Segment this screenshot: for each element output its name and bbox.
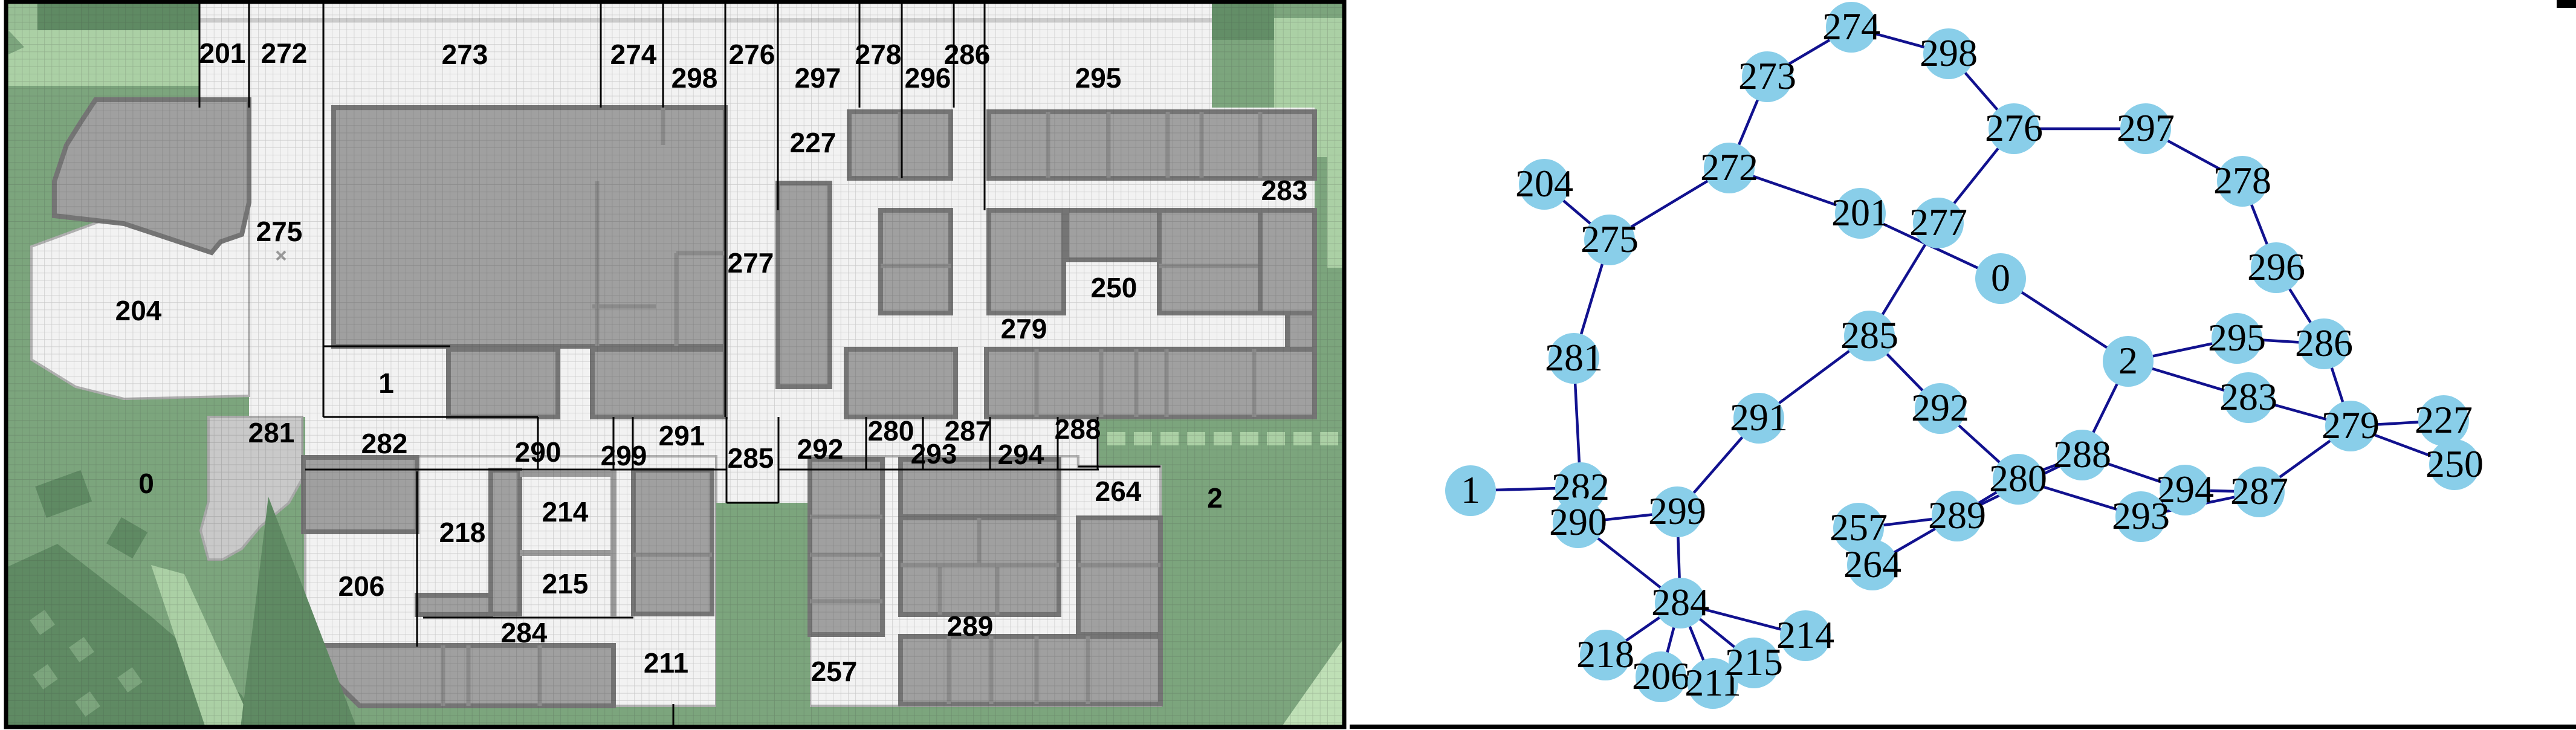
- svg-text:295: 295: [1075, 62, 1122, 94]
- svg-text:272: 272: [261, 37, 308, 69]
- svg-text:215: 215: [542, 568, 589, 599]
- svg-text:291: 291: [659, 420, 705, 451]
- svg-text:273: 273: [442, 39, 488, 70]
- svg-text:204: 204: [1515, 162, 1573, 205]
- svg-text:227: 227: [790, 127, 837, 158]
- svg-text:218: 218: [439, 517, 486, 548]
- svg-text:294: 294: [998, 439, 1044, 470]
- svg-text:298: 298: [1920, 31, 1978, 74]
- svg-text:289: 289: [1928, 494, 1986, 537]
- svg-text:285: 285: [728, 442, 774, 474]
- svg-text:293: 293: [2112, 494, 2170, 537]
- svg-text:273: 273: [1738, 54, 1796, 97]
- svg-text:281: 281: [248, 417, 295, 448]
- svg-text:206: 206: [338, 570, 385, 602]
- svg-text:277: 277: [1909, 201, 1967, 244]
- svg-text:297: 297: [795, 62, 841, 94]
- svg-text:250: 250: [2426, 442, 2484, 485]
- svg-text:284: 284: [501, 617, 548, 648]
- svg-text:277: 277: [728, 247, 774, 279]
- svg-text:204: 204: [115, 295, 162, 326]
- svg-text:296: 296: [905, 62, 951, 94]
- svg-text:214: 214: [1776, 613, 1834, 656]
- svg-text:290: 290: [1549, 500, 1607, 543]
- svg-text:218: 218: [1576, 633, 1634, 676]
- svg-text:293: 293: [911, 438, 957, 470]
- svg-text:227: 227: [2415, 398, 2473, 441]
- svg-text:278: 278: [855, 39, 902, 70]
- svg-text:295: 295: [2208, 316, 2266, 359]
- svg-text:201: 201: [199, 37, 246, 69]
- svg-text:291: 291: [1730, 396, 1788, 439]
- svg-text:250: 250: [1091, 272, 1138, 303]
- svg-text:280: 280: [868, 415, 914, 447]
- svg-text:0: 0: [1991, 256, 2010, 299]
- svg-text:1: 1: [1461, 468, 1480, 511]
- svg-text:275: 275: [1581, 218, 1639, 260]
- svg-text:284: 284: [1651, 581, 1709, 624]
- svg-text:2: 2: [2118, 339, 2138, 382]
- svg-text:272: 272: [1700, 146, 1758, 189]
- svg-text:279: 279: [1001, 313, 1047, 344]
- svg-text:257: 257: [811, 656, 858, 687]
- svg-text:298: 298: [672, 62, 718, 94]
- svg-text:287: 287: [2230, 470, 2288, 512]
- svg-text:206: 206: [1632, 654, 1690, 697]
- svg-text:292: 292: [1911, 386, 1969, 429]
- svg-text:292: 292: [797, 433, 844, 465]
- svg-text:215: 215: [1725, 641, 1783, 683]
- svg-text:276: 276: [729, 39, 775, 70]
- svg-text:299: 299: [1648, 489, 1706, 532]
- svg-text:286: 286: [2295, 321, 2353, 364]
- svg-text:1: 1: [378, 367, 394, 399]
- svg-text:282: 282: [361, 428, 408, 459]
- svg-text:296: 296: [2247, 245, 2305, 288]
- svg-text:299: 299: [601, 440, 647, 471]
- svg-text:211: 211: [644, 647, 688, 679]
- svg-text:281: 281: [1545, 336, 1603, 379]
- svg-text:288: 288: [2053, 433, 2111, 476]
- svg-text:264: 264: [1095, 476, 1142, 507]
- svg-text:274: 274: [1822, 5, 1880, 48]
- svg-text:275: 275: [256, 216, 303, 247]
- svg-text:279: 279: [2322, 404, 2380, 447]
- svg-text:0: 0: [138, 468, 154, 499]
- svg-text:278: 278: [2213, 159, 2271, 202]
- svg-text:283: 283: [1261, 175, 1308, 206]
- svg-text:276: 276: [1985, 106, 2043, 149]
- svg-text:285: 285: [1840, 314, 1898, 357]
- svg-text:288: 288: [1055, 413, 1101, 445]
- svg-text:274: 274: [610, 39, 657, 70]
- svg-text:297: 297: [2117, 106, 2175, 149]
- svg-text:2: 2: [1207, 482, 1223, 514]
- svg-text:280: 280: [1989, 457, 2047, 500]
- svg-text:289: 289: [947, 610, 994, 642]
- svg-text:214: 214: [542, 496, 589, 528]
- svg-text:201: 201: [1831, 191, 1889, 234]
- svg-text:290: 290: [515, 436, 561, 468]
- svg-text:264: 264: [1843, 543, 1901, 586]
- svg-text:283: 283: [2219, 375, 2277, 418]
